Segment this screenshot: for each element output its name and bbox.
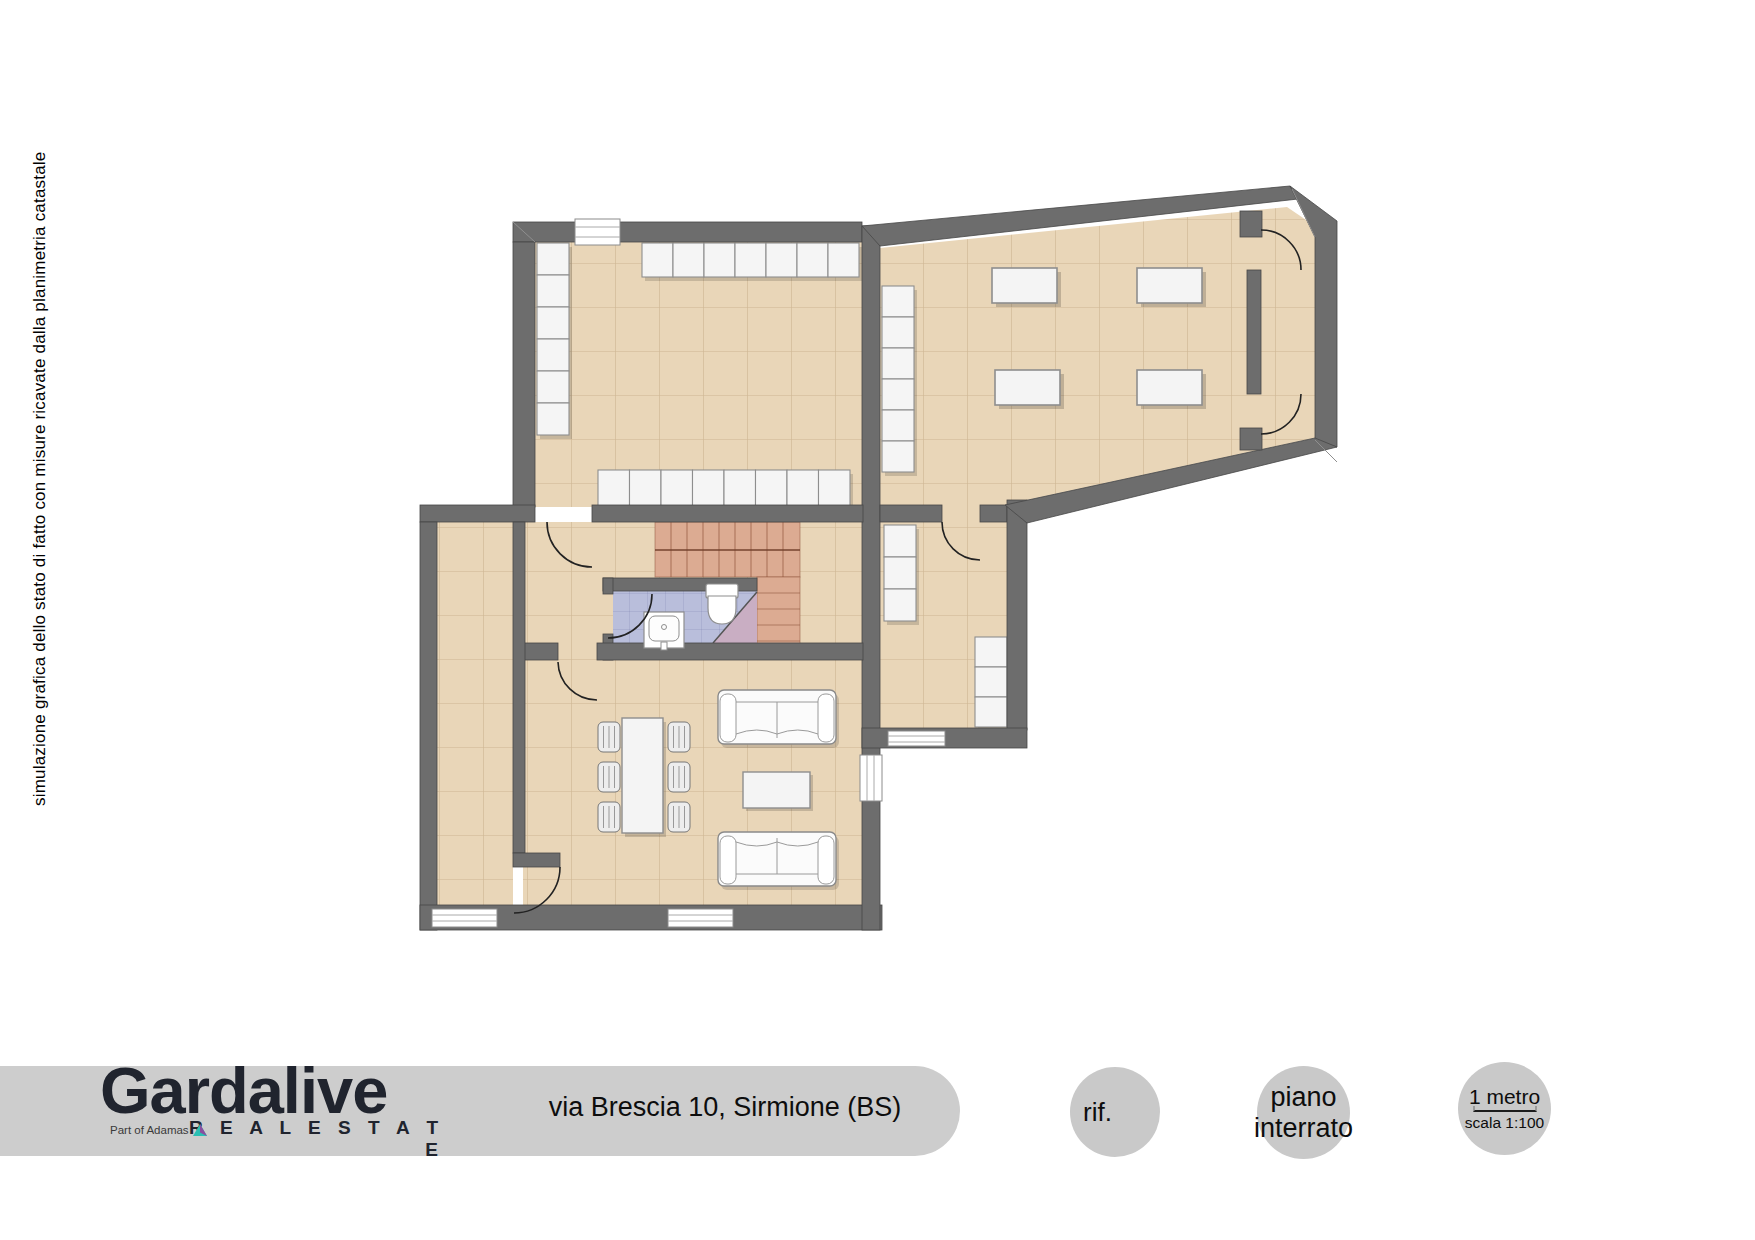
table xyxy=(992,268,1057,303)
reference-label: rif. xyxy=(1083,1097,1112,1128)
cabinet-unit xyxy=(884,525,916,557)
cabinet-unit xyxy=(537,275,569,307)
cabinet-unit xyxy=(882,410,914,441)
cabinet-unit xyxy=(884,557,916,589)
property-address: via Brescia 10, Sirmione (BS) xyxy=(490,1092,960,1123)
floor-line2: interrato xyxy=(1254,1113,1353,1143)
cabinet-unit xyxy=(537,339,569,371)
floor-badge: piano interrato xyxy=(1257,1066,1350,1159)
cabinet-unit xyxy=(882,441,914,472)
dining-table xyxy=(622,718,663,833)
cabinet-unit xyxy=(598,470,630,506)
floor-line1: piano xyxy=(1270,1082,1336,1112)
cabinet-unit xyxy=(673,243,704,277)
brand-tagline: R E A L E S T A T E xyxy=(180,1117,444,1161)
cabinet-unit xyxy=(630,470,662,506)
sofa-armrest xyxy=(720,836,736,884)
left-room-floor xyxy=(437,522,513,905)
cabinet-unit xyxy=(882,317,914,348)
brand-partner-label: Part of Adamas xyxy=(110,1124,189,1136)
cabinet-unit xyxy=(661,470,693,506)
cabinet-unit xyxy=(787,470,819,506)
wall-stub xyxy=(1240,211,1262,237)
window xyxy=(860,755,882,801)
scale-caption: scala 1:100 xyxy=(1465,1114,1544,1132)
dining-chair xyxy=(598,762,620,792)
cabinet-unit xyxy=(735,243,766,277)
sofa-bottom xyxy=(718,832,839,890)
cabinet-unit xyxy=(642,243,673,277)
wall xyxy=(597,643,863,660)
cabinet-unit xyxy=(882,379,914,410)
window xyxy=(668,909,733,927)
bathroom-sink xyxy=(644,612,684,650)
cabinet-unit xyxy=(766,243,797,277)
wall xyxy=(880,505,942,522)
coffee-table xyxy=(743,772,813,811)
window xyxy=(888,731,945,746)
dining-chair xyxy=(668,802,690,832)
cabinet-unit xyxy=(882,348,914,379)
cabinet-unit xyxy=(797,243,828,277)
sofa-top xyxy=(718,690,839,748)
wall xyxy=(1007,500,1027,730)
bathroom-wall xyxy=(603,578,613,594)
cabinet-unit xyxy=(975,637,1007,667)
sofa-armrest xyxy=(720,694,736,742)
cabinet-unit xyxy=(756,470,788,506)
cabinet-unit xyxy=(537,371,569,403)
cabinet-unit xyxy=(537,243,569,275)
room-top-left-floor xyxy=(535,242,862,507)
wall xyxy=(420,522,437,930)
dining-chair xyxy=(598,802,620,832)
window xyxy=(575,219,620,245)
adamas-triangle-icon xyxy=(193,1124,207,1136)
brand-partner: Part of Adamas xyxy=(110,1124,207,1136)
page: simulazione grafica dello stato di fatto… xyxy=(0,0,1755,1240)
cabinet-unit xyxy=(693,470,725,506)
cabinet-unit xyxy=(537,403,569,435)
dining-chair xyxy=(668,762,690,792)
table xyxy=(1137,268,1202,303)
toilet xyxy=(706,584,738,624)
wall-stub xyxy=(1240,428,1262,450)
cabinet-unit xyxy=(704,243,735,277)
wall xyxy=(513,853,560,867)
wall xyxy=(862,226,880,930)
wall xyxy=(592,505,863,522)
cabinet-unit xyxy=(724,470,756,506)
wall xyxy=(523,643,558,660)
table xyxy=(1137,370,1202,405)
vestibule-wall xyxy=(1247,270,1261,394)
wall xyxy=(980,505,1007,522)
cabinet-unit xyxy=(975,667,1007,697)
wall xyxy=(513,222,862,242)
cabinet-unit xyxy=(819,470,851,506)
wall xyxy=(420,505,535,522)
table xyxy=(995,370,1060,405)
window xyxy=(432,909,497,927)
sofa-armrest xyxy=(818,836,834,884)
scale-badge: 1 metro scala 1:100 xyxy=(1458,1062,1551,1155)
dining-chair xyxy=(598,722,620,752)
cabinet-unit xyxy=(975,697,1007,727)
sofa-armrest xyxy=(818,694,834,742)
wall xyxy=(513,242,535,507)
cabinet-unit xyxy=(884,589,916,621)
dining-set xyxy=(598,718,690,837)
cabinet-unit xyxy=(882,286,914,317)
reference-badge: rif. xyxy=(1070,1067,1160,1157)
dining-chair xyxy=(668,722,690,752)
wall xyxy=(513,522,525,853)
cabinet-unit xyxy=(537,307,569,339)
cabinet-unit xyxy=(828,243,859,277)
scale-bar-icon xyxy=(1473,1106,1537,1112)
